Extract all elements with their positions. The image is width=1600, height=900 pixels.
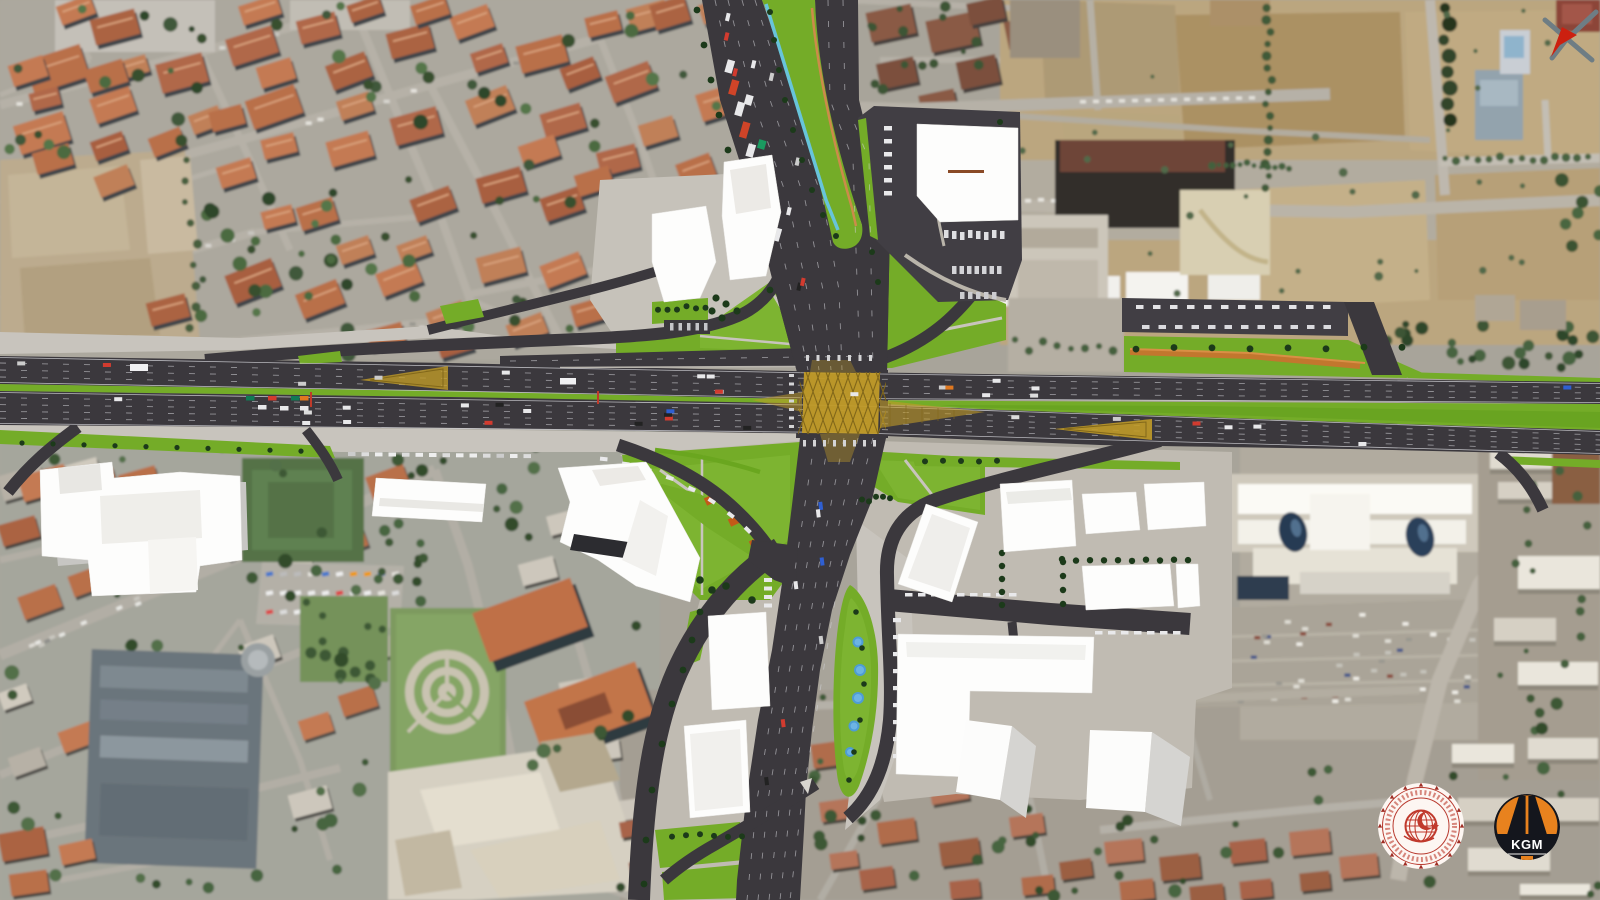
svg-text:KGM: KGM (1511, 837, 1543, 852)
